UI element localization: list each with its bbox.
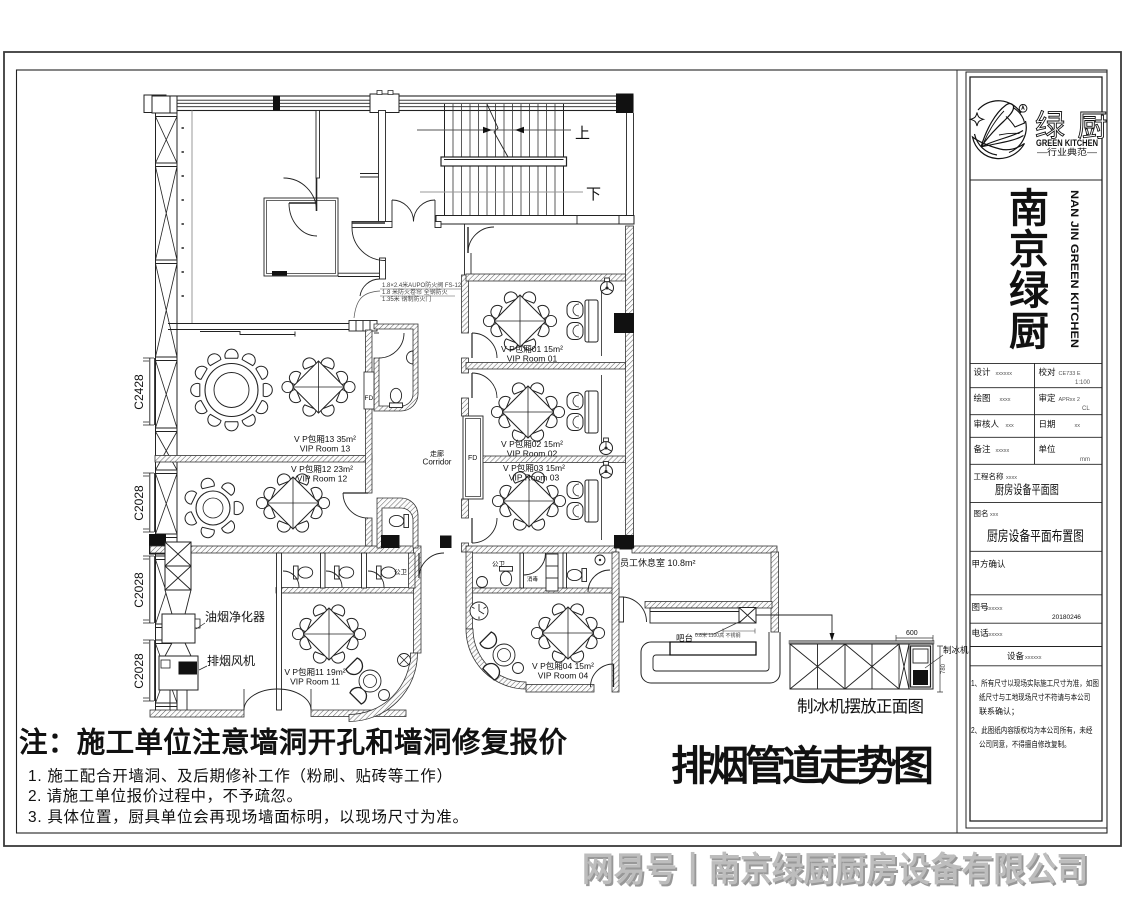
svg-text:mm: mm xyxy=(1080,457,1090,463)
svg-text:京: 京 xyxy=(1009,228,1049,272)
svg-text:V P包厢01 15m²: V P包厢01 15m² xyxy=(501,344,563,354)
svg-text:V P包厢12 23m²: V P包厢12 23m² xyxy=(291,464,353,474)
svg-text:xxxxxx: xxxxxx xyxy=(1025,655,1042,661)
svg-text:制冰机: 制冰机 xyxy=(943,645,969,655)
svg-text:CL: CL xyxy=(1082,406,1090,412)
svg-text:南: 南 xyxy=(1009,187,1049,231)
svg-text:xxx: xxx xyxy=(1006,423,1015,429)
svg-text:NAN JIN GREEN KITCHEN: NAN JIN GREEN KITCHEN xyxy=(1068,190,1080,348)
svg-text:1.8×2.4米AUPO防火阀 FS-125: 1.8×2.4米AUPO防火阀 FS-125 xyxy=(382,281,465,289)
svg-text:VIP Room 04: VIP Room 04 xyxy=(538,671,589,681)
svg-text:xxxx: xxxx xyxy=(1000,397,1011,403)
svg-text:V P包厢13 35m²: V P包厢13 35m² xyxy=(294,434,356,444)
svg-text:员工休息室 10.8m²: 员工休息室 10.8m² xyxy=(620,557,696,568)
svg-text:纸尺寸与工地现场尺寸不符请与本公司: 纸尺寸与工地现场尺寸不符请与本公司 xyxy=(979,692,1090,702)
svg-text:xxx: xxx xyxy=(990,512,999,518)
svg-text:工程名称: 工程名称 xyxy=(974,471,1004,481)
svg-text:消毒: 消毒 xyxy=(527,575,539,583)
svg-text:Corridor: Corridor xyxy=(423,458,452,467)
svg-text:下: 下 xyxy=(586,186,601,203)
svg-text:V P包厢11 19m²: V P包厢11 19m² xyxy=(284,667,345,677)
svg-text:日期: 日期 xyxy=(1039,419,1056,429)
svg-text:1、所有尺寸以现场实际施工尺寸为准，如图: 1、所有尺寸以现场实际施工尺寸为准，如图 xyxy=(971,678,1099,688)
svg-text:注：施工单位注意墙洞开孔和墙洞修复报价: 注：施工单位注意墙洞开孔和墙洞修复报价 xyxy=(19,726,567,759)
svg-text:VIP Room 11: VIP Room 11 xyxy=(290,677,340,687)
svg-text:xxxxx: xxxxx xyxy=(996,448,1010,454)
svg-text:排烟风机: 排烟风机 xyxy=(207,654,255,668)
svg-text:图名: 图名 xyxy=(974,508,989,518)
svg-text:油烟净化器: 油烟净化器 xyxy=(205,610,265,624)
svg-text:C2428: C2428 xyxy=(132,374,146,410)
svg-text:网易号丨南京绿厨厨房设备有限公司: 网易号丨南京绿厨厨房设备有限公司 xyxy=(582,851,1088,889)
svg-text:FD: FD xyxy=(365,395,374,402)
svg-text:排烟管道走势图: 排烟管道走势图 xyxy=(671,743,934,789)
svg-text:0.8米 1100高 不锈钢: 0.8米 1100高 不锈钢 xyxy=(695,632,740,639)
svg-text:xxxxxx: xxxxxx xyxy=(986,632,1003,638)
svg-text:吧台: 吧台 xyxy=(676,633,693,643)
svg-text:V P包厢04 15m²: V P包厢04 15m² xyxy=(532,661,594,671)
svg-text:xxxx: xxxx xyxy=(1006,475,1017,481)
svg-text:VIP Room 01: VIP Room 01 xyxy=(507,354,558,364)
svg-text:xxxxxx: xxxxxx xyxy=(996,371,1013,377)
svg-text:设计: 设计 xyxy=(974,367,992,377)
svg-text:C2028: C2028 xyxy=(132,572,146,608)
svg-text:780: 780 xyxy=(941,663,947,674)
svg-text:FD: FD xyxy=(468,455,477,462)
svg-text:联系确认；: 联系确认； xyxy=(979,706,1019,716)
svg-text:审核人: 审核人 xyxy=(974,419,1000,429)
svg-text:设备: 设备 xyxy=(1007,651,1025,661)
svg-text:C2028: C2028 xyxy=(132,485,146,521)
svg-text:绘图: 绘图 xyxy=(974,393,991,403)
svg-text:1:100: 1:100 xyxy=(1075,380,1091,386)
svg-text:VIP Room 03: VIP Room 03 xyxy=(509,473,560,483)
svg-text:公司同意，不得擅自修改复制。: 公司同意，不得擅自修改复制。 xyxy=(979,739,1071,749)
svg-text:V P包厢03 15m²: V P包厢03 15m² xyxy=(503,463,565,473)
svg-text:3. 具体位置，厨具单位会再现场墙面标明，以现场尺寸为准。: 3. 具体位置，厨具单位会再现场墙面标明，以现场尺寸为准。 xyxy=(28,808,468,826)
svg-text:校对: 校对 xyxy=(1039,367,1057,377)
svg-text:厨房设备平面图: 厨房设备平面图 xyxy=(995,481,1059,497)
svg-text:VIP Room 12: VIP Room 12 xyxy=(297,474,348,484)
svg-text:1. 施工配合开墙洞、及后期修补工作（粉刷、贴砖等工作）: 1. 施工配合开墙洞、及后期修补工作（粉刷、贴砖等工作） xyxy=(28,767,452,785)
svg-text:上: 上 xyxy=(575,125,590,142)
svg-text:制冰机摆放正面图: 制冰机摆放正面图 xyxy=(797,697,924,716)
svg-text:VIP Room 02: VIP Room 02 xyxy=(507,449,558,459)
svg-text:CE733 E: CE733 E xyxy=(1059,371,1081,377)
svg-text:V P包厢02 15m²: V P包厢02 15m² xyxy=(501,439,563,449)
svg-text:绿: 绿 xyxy=(1009,269,1050,313)
svg-text:厨房设备平面布置图: 厨房设备平面布置图 xyxy=(987,528,1084,545)
svg-text:xx: xx xyxy=(1075,423,1081,429)
svg-text:VIP Room 13: VIP Room 13 xyxy=(300,444,351,454)
svg-text:单位: 单位 xyxy=(1039,444,1057,454)
svg-text:C2028: C2028 xyxy=(132,653,146,689)
svg-text:公卫: 公卫 xyxy=(394,568,408,576)
svg-text:20180246: 20180246 xyxy=(1052,614,1081,621)
svg-text:备注: 备注 xyxy=(974,444,992,454)
svg-text:审定: 审定 xyxy=(1039,393,1057,403)
svg-text:甲方确认: 甲方确认 xyxy=(972,559,1007,569)
svg-text:公卫: 公卫 xyxy=(492,560,506,568)
svg-text:600: 600 xyxy=(906,630,918,637)
svg-text:—行业典范—: —行业典范— xyxy=(1037,147,1098,157)
svg-text:2. 请施工单位报价过程中，不予疏忽。: 2. 请施工单位报价过程中，不予疏忽。 xyxy=(28,787,302,805)
svg-text:厨: 厨 xyxy=(1009,310,1049,354)
svg-text:2、此图纸内容版权均为本公司所有，未经: 2、此图纸内容版权均为本公司所有，未经 xyxy=(971,725,1093,735)
svg-text:xxxxxx: xxxxxx xyxy=(986,606,1003,612)
svg-text:APRxx 2: APRxx 2 xyxy=(1059,397,1080,403)
